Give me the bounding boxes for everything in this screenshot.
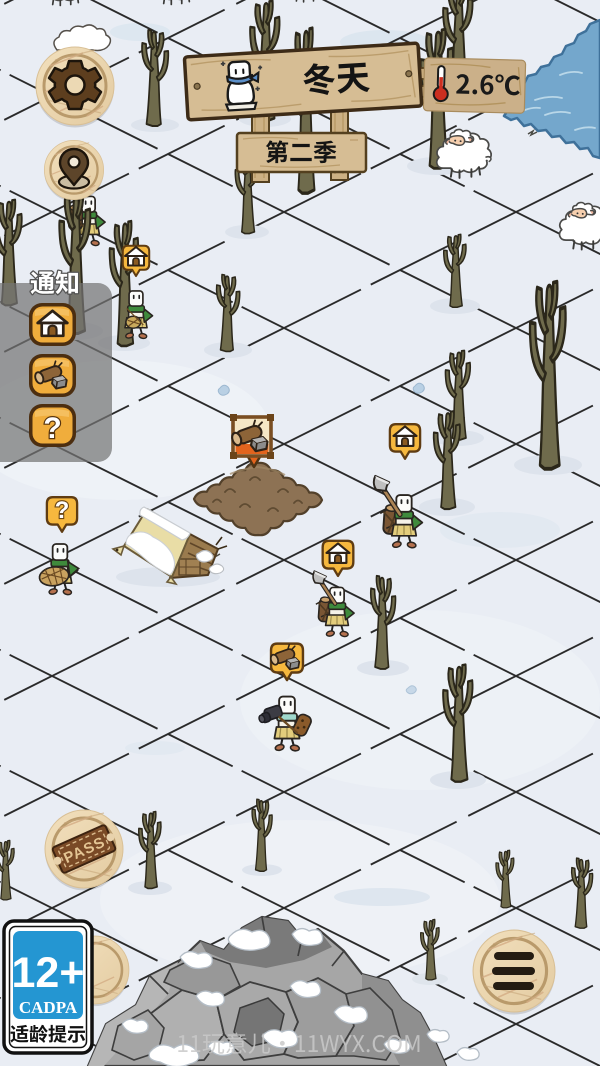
svg-text:12+: 12+ [12,949,85,997]
svg-text:CADPA: CADPA [19,998,78,1017]
svg-text:?: ? [55,497,70,524]
svg-text:?: ? [43,412,61,445]
